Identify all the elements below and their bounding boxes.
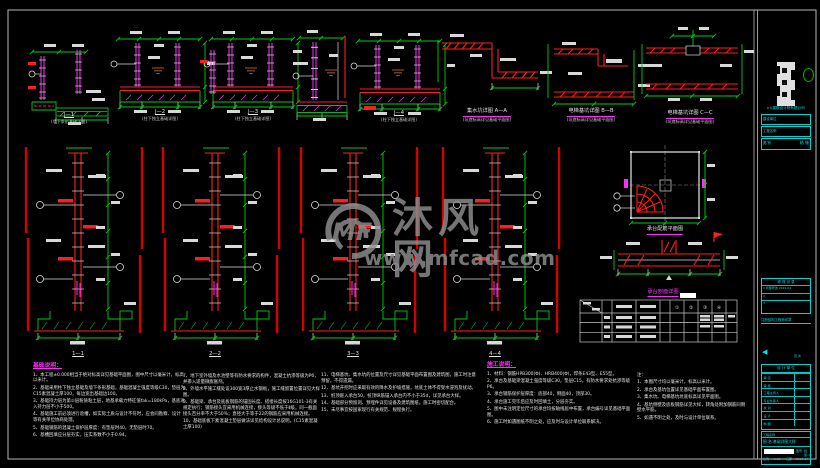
detail-pit-c — [642, 27, 754, 101]
caption-d8-sub: (坑底标高详见基础平面图) — [666, 119, 714, 125]
section-2 — [163, 147, 279, 345]
notes-column-2: 7、地下室外墙及水池壁等有防水要求的构件，混凝土抗渗等级为P6，并掺入适量微膨胀… — [183, 374, 321, 433]
caption-plan-title: 承台配筋平面图 — [647, 226, 683, 235]
date-value: 2019.04 — [796, 457, 808, 461]
table-header-4: ④ — [717, 305, 721, 311]
detail-j3 — [200, 31, 308, 113]
notes-column-5: 注：1、本图尺寸均以毫米计，标高以米计。2、承台及基坑位置详见基础平面布置图。3… — [637, 373, 749, 423]
signature-table: 设 计 单 位 审 定审 核工程主持人专业负责人校 对设 计制 图 — [761, 364, 811, 430]
field-discipline-value: 结 施 — [800, 140, 809, 146]
caption-s2: 2—2 — [209, 351, 221, 358]
caption-d6: 集水坑详图 A—A (坑底标高详见基础平面图) — [463, 108, 511, 122]
section-1 — [26, 147, 142, 345]
watermark-logo-text: MF — [332, 218, 373, 246]
notes-column-1: 基础说明： 1、本工程±0.000相当于绝对标高详见基础平面图，图中尺寸以毫米计… — [33, 363, 185, 440]
notes-col1-lines: 1、本工程±0.000相当于绝对标高详见基础平面图，图中尺寸以毫米计，标高以米计… — [33, 373, 185, 439]
caption-d1-title: J—1 — [51, 112, 87, 119]
pilecap-section — [600, 232, 738, 280]
scale-label: 比例 — [763, 457, 769, 461]
cad-sheet: ① ② ③ ④ MF 沐风网 www.mfcad.com J—1 (墙下条形基础… — [0, 0, 820, 468]
caption-d8: 电梯基坑详图 C—C (坑底标高详见基础平面图) — [666, 110, 714, 124]
caption-d2-sub: (柱下独立基础详图) — [142, 116, 178, 122]
watermark: MF 沐风网 www.mfcad.com — [320, 196, 520, 276]
caption-d5-sub: (柱下独立基础详图) — [381, 117, 417, 123]
caption-d2: J—2 (柱下独立基础详图) — [142, 109, 178, 122]
drawing-info-block: 工程名称 图 名 基础详图大样 图号 结施-12 比例 1:50 日期 2019… — [761, 431, 811, 465]
stamp-field — [764, 449, 794, 454]
notes-col4-lines: 1、材料：钢筋HPB300(Φ)、HRB400(Φ)，焊条E43型、E55型。2… — [487, 372, 635, 426]
caption-d3: J—3 (柱下独立基础详图) — [235, 109, 271, 122]
field-discipline-label: 图 别 — [763, 141, 771, 145]
signature-table-title: 设 计 单 位 — [762, 365, 810, 373]
caption-d5: J—4 (柱下独立基础详图) — [381, 110, 417, 123]
caption-d2-title: J—2 — [142, 109, 178, 116]
detail-j4 — [351, 33, 455, 115]
caption-d7: 电梯基坑详图 B—B (坑底标高详见基础平面图) — [567, 108, 615, 122]
caption-section: 承台剖面详图 — [647, 289, 678, 297]
pilecap-plan — [614, 145, 715, 225]
key-plan-thumbnail — [774, 60, 800, 110]
caption-s2-title: 2—2 — [209, 351, 221, 358]
caption-section-title: 承台剖面详图 — [647, 289, 678, 297]
drawing-no-value: 结施-12 — [804, 449, 812, 457]
caption-d5-title: J—4 — [381, 110, 417, 117]
caption-d1: J—1 (墙下条形基础详图) — [51, 112, 87, 125]
caption-d6-title: 集水坑详图 A—A — [463, 108, 511, 117]
table-header-2: ② — [689, 305, 693, 311]
north-arrow-icon — [803, 68, 814, 82]
caption-s1: 1—1 — [72, 351, 84, 358]
field-discipline: 图 别 结 施 — [761, 138, 811, 150]
firm-name: ××建筑设计院有限公司 — [760, 106, 811, 111]
caption-d3-title: J—3 — [235, 109, 271, 116]
field-project: 工程名称 — [761, 126, 811, 137]
caption-s3-title: 3—3 — [347, 351, 359, 358]
caption-s3: 3—3 — [347, 351, 359, 358]
revision-rows: 1 局部修改 2019.0423 — [762, 285, 810, 307]
watermark-url: www.mfcad.com — [364, 246, 556, 270]
caption-d1-sub: (墙下条形基础详图) — [51, 119, 87, 125]
caption-d3-sub: (柱下独立基础详图) — [235, 116, 271, 122]
scale-value: 1:50 — [774, 457, 781, 461]
detail-wall — [293, 30, 347, 121]
notes-column-3: 11、电梯基坑、集水坑的位置及尺寸详见基础平面布置图及建筑图，施工时注意预留，不… — [321, 373, 479, 416]
table-header-3: ③ — [703, 305, 707, 311]
notes-col2-lines: 7、地下室外墙及水池壁等有防水要求的构件，混凝土抗渗等级为P6，并掺入适量微膨胀… — [183, 374, 321, 431]
drawing-no-label: 图号 — [796, 449, 802, 453]
notes-col3-lines: 11、电梯基坑、集水坑的位置及尺寸详见基础平面布置图及建筑图，施工时注意预留，不… — [321, 373, 479, 414]
titleblock: ××建筑设计院有限公司 建设单位 工程名称 图 别 结 施 修 改 记 录 1 … — [757, 10, 814, 459]
drawing-name-row: 图 名 基础详图大样 — [762, 438, 810, 447]
notes-column-4: 施工说明： 1、材料：钢筋HPB300(Φ)、HRB400(Φ)，焊条E43型、… — [487, 362, 635, 428]
caption-plan: 承台配筋平面图 — [647, 226, 683, 235]
revision-table: 修 改 记 录 1 局部修改 2019.0423 — [761, 278, 811, 314]
caption-s4: 4—4 — [489, 351, 501, 358]
date-label: 日期 — [786, 457, 792, 461]
signature-rows: 审 定审 核工程主持人专业负责人校 对设 计制 图 — [762, 373, 810, 426]
schedule-table: ① ② ③ ④ — [580, 293, 737, 342]
caption-s4-title: 4—4 — [489, 351, 501, 358]
caption-d8-title: 电梯基坑详图 C—C — [666, 110, 714, 119]
drawing-name-value: 基础详图大样 — [773, 439, 796, 444]
notes-col1-heading: 基础说明： — [33, 363, 185, 371]
caption-s1-title: 1—1 — [72, 351, 84, 358]
detail-pit-a — [438, 34, 552, 90]
caption-d6-sub: (坑底标高详见基础平面图) — [463, 117, 511, 123]
table-header-1: ① — [675, 305, 679, 311]
notes-col4-heading: 施工说明： — [487, 362, 635, 370]
caption-d7-sub: (坑底标高详见基础平面图) — [567, 117, 615, 123]
certificate-line: 注册结构工程师印章 — [761, 317, 811, 324]
stamp-arrow-icon: ◀ — [762, 348, 767, 356]
detail-j2 — [111, 31, 215, 113]
drawing-name-label: 图 名 — [763, 439, 772, 444]
caption-d7-title: 电梯基坑详图 B—B — [567, 108, 615, 117]
notes-col5-lines: 注：1、本图尺寸均以毫米计，标高以米计。2、承台及基坑位置详见基础平面布置图。3… — [637, 373, 749, 422]
detail-pit-b — [548, 42, 650, 106]
field-owner: 建设单位 — [761, 114, 811, 125]
page-label: 页 次 — [794, 354, 801, 358]
